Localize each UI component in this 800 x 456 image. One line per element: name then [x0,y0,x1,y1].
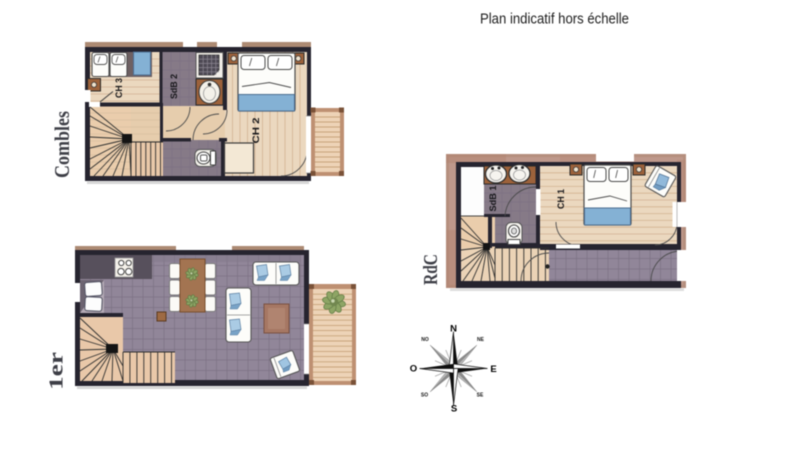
svg-text:SE: SE [477,393,484,399]
svg-text:CH 2: CH 2 [251,118,262,144]
svg-text:SO: SO [421,393,428,399]
svg-text:1er: 1er [46,352,68,390]
svg-text:S: S [451,404,457,415]
svg-text:SdB 2: SdB 2 [169,74,179,99]
svg-text:Combles: Combles [50,111,74,178]
svg-text:E: E [490,364,496,375]
svg-text:N: N [450,324,457,335]
svg-text:CH 1: CH 1 [556,188,567,209]
svg-text:RdC: RdC [420,254,442,285]
svg-text:NO: NO [421,337,429,343]
svg-text:O: O [410,364,417,375]
svg-text:NE: NE [477,337,485,343]
svg-text:Plan indicatif hors échelle: Plan indicatif hors échelle [480,11,629,28]
svg-text:CH 3: CH 3 [114,78,125,98]
svg-text:SdB 1: SdB 1 [488,186,498,212]
